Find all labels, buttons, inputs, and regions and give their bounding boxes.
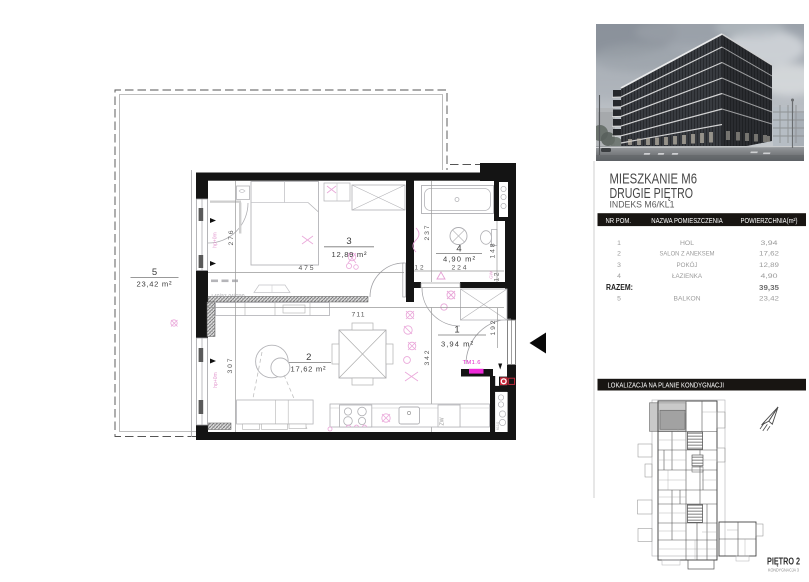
svg-text:276: 276: [228, 230, 235, 245]
svg-text:ŁAZIENKA: ŁAZIENKA: [672, 273, 702, 280]
svg-text:BALKON: BALKON: [674, 296, 701, 303]
svg-text:3,94 m²: 3,94 m²: [441, 340, 473, 349]
svg-text:4,90: 4,90: [761, 273, 778, 280]
svg-text:224: 224: [452, 265, 467, 272]
svg-text:4: 4: [617, 273, 621, 280]
svg-text:5: 5: [152, 267, 157, 278]
svg-text:5: 5: [617, 296, 621, 303]
svg-text:3: 3: [346, 236, 351, 247]
svg-text:4,90 m²: 4,90 m²: [443, 255, 475, 264]
svg-text:711: 711: [352, 312, 365, 319]
svg-text:PIĘTRO 2: PIĘTRO 2: [767, 557, 800, 568]
svg-text:1: 1: [454, 325, 459, 336]
svg-text:NR POM.: NR POM.: [606, 218, 632, 225]
svg-text:342: 342: [424, 350, 431, 365]
svg-text:12: 12: [415, 265, 424, 272]
svg-text:192: 192: [490, 320, 497, 335]
svg-text:3,94: 3,94: [761, 240, 778, 247]
svg-text:12: 12: [494, 272, 501, 281]
svg-text:148: 148: [490, 243, 497, 258]
svg-text:LOKALIZACJA NA PLANIE KONDYGNA: LOKALIZACJA NA PLANIE KONDYGNACJI: [608, 382, 725, 389]
svg-text:TM1.6: TM1.6: [463, 360, 481, 366]
svg-text:39,35: 39,35: [759, 285, 779, 292]
svg-text:hp+0m: hp+0m: [213, 372, 219, 387]
svg-text:3: 3: [617, 262, 621, 269]
svg-text:POKÓJ: POKÓJ: [677, 260, 698, 269]
svg-text:SALON Z ANEKSEM: SALON Z ANEKSEM: [660, 250, 715, 257]
svg-text:12,89 m²: 12,89 m²: [332, 250, 367, 259]
svg-text:17,62: 17,62: [759, 250, 779, 257]
svg-text:INDEKS M6/KL1: INDEKS M6/KL1: [610, 200, 675, 211]
svg-text:KONDYGNACJA 3: KONDYGNACJA 3: [768, 568, 799, 574]
svg-text:hp+0m: hp+0m: [213, 232, 219, 247]
svg-text:POWIERZCHNIA(m²): POWIERZCHNIA(m²): [741, 218, 798, 225]
svg-text:ZW: ZW: [440, 417, 446, 425]
svg-text:HOL: HOL: [680, 240, 694, 247]
svg-text:12,89: 12,89: [759, 262, 779, 269]
svg-text:1: 1: [617, 240, 621, 247]
svg-text:L40/52 04/G50: L40/52 04/G50: [212, 293, 246, 298]
svg-text:237: 237: [424, 225, 431, 240]
svg-text:NAZWA POMIESZCZENIA: NAZWA POMIESZCZENIA: [651, 218, 723, 225]
svg-text:307: 307: [227, 358, 234, 373]
svg-text:2: 2: [617, 250, 621, 257]
svg-text:23,42: 23,42: [759, 296, 779, 303]
svg-text:RAZEM:: RAZEM:: [606, 283, 633, 292]
svg-text:4: 4: [456, 244, 461, 255]
svg-text:2: 2: [306, 352, 311, 363]
svg-text:23,42 m²: 23,42 m²: [137, 280, 172, 289]
svg-text:fi110: fi110: [495, 421, 500, 430]
svg-text:GW: GW: [489, 270, 494, 279]
svg-text:475: 475: [299, 265, 314, 272]
svg-text:17,62 m²: 17,62 m²: [291, 365, 326, 374]
